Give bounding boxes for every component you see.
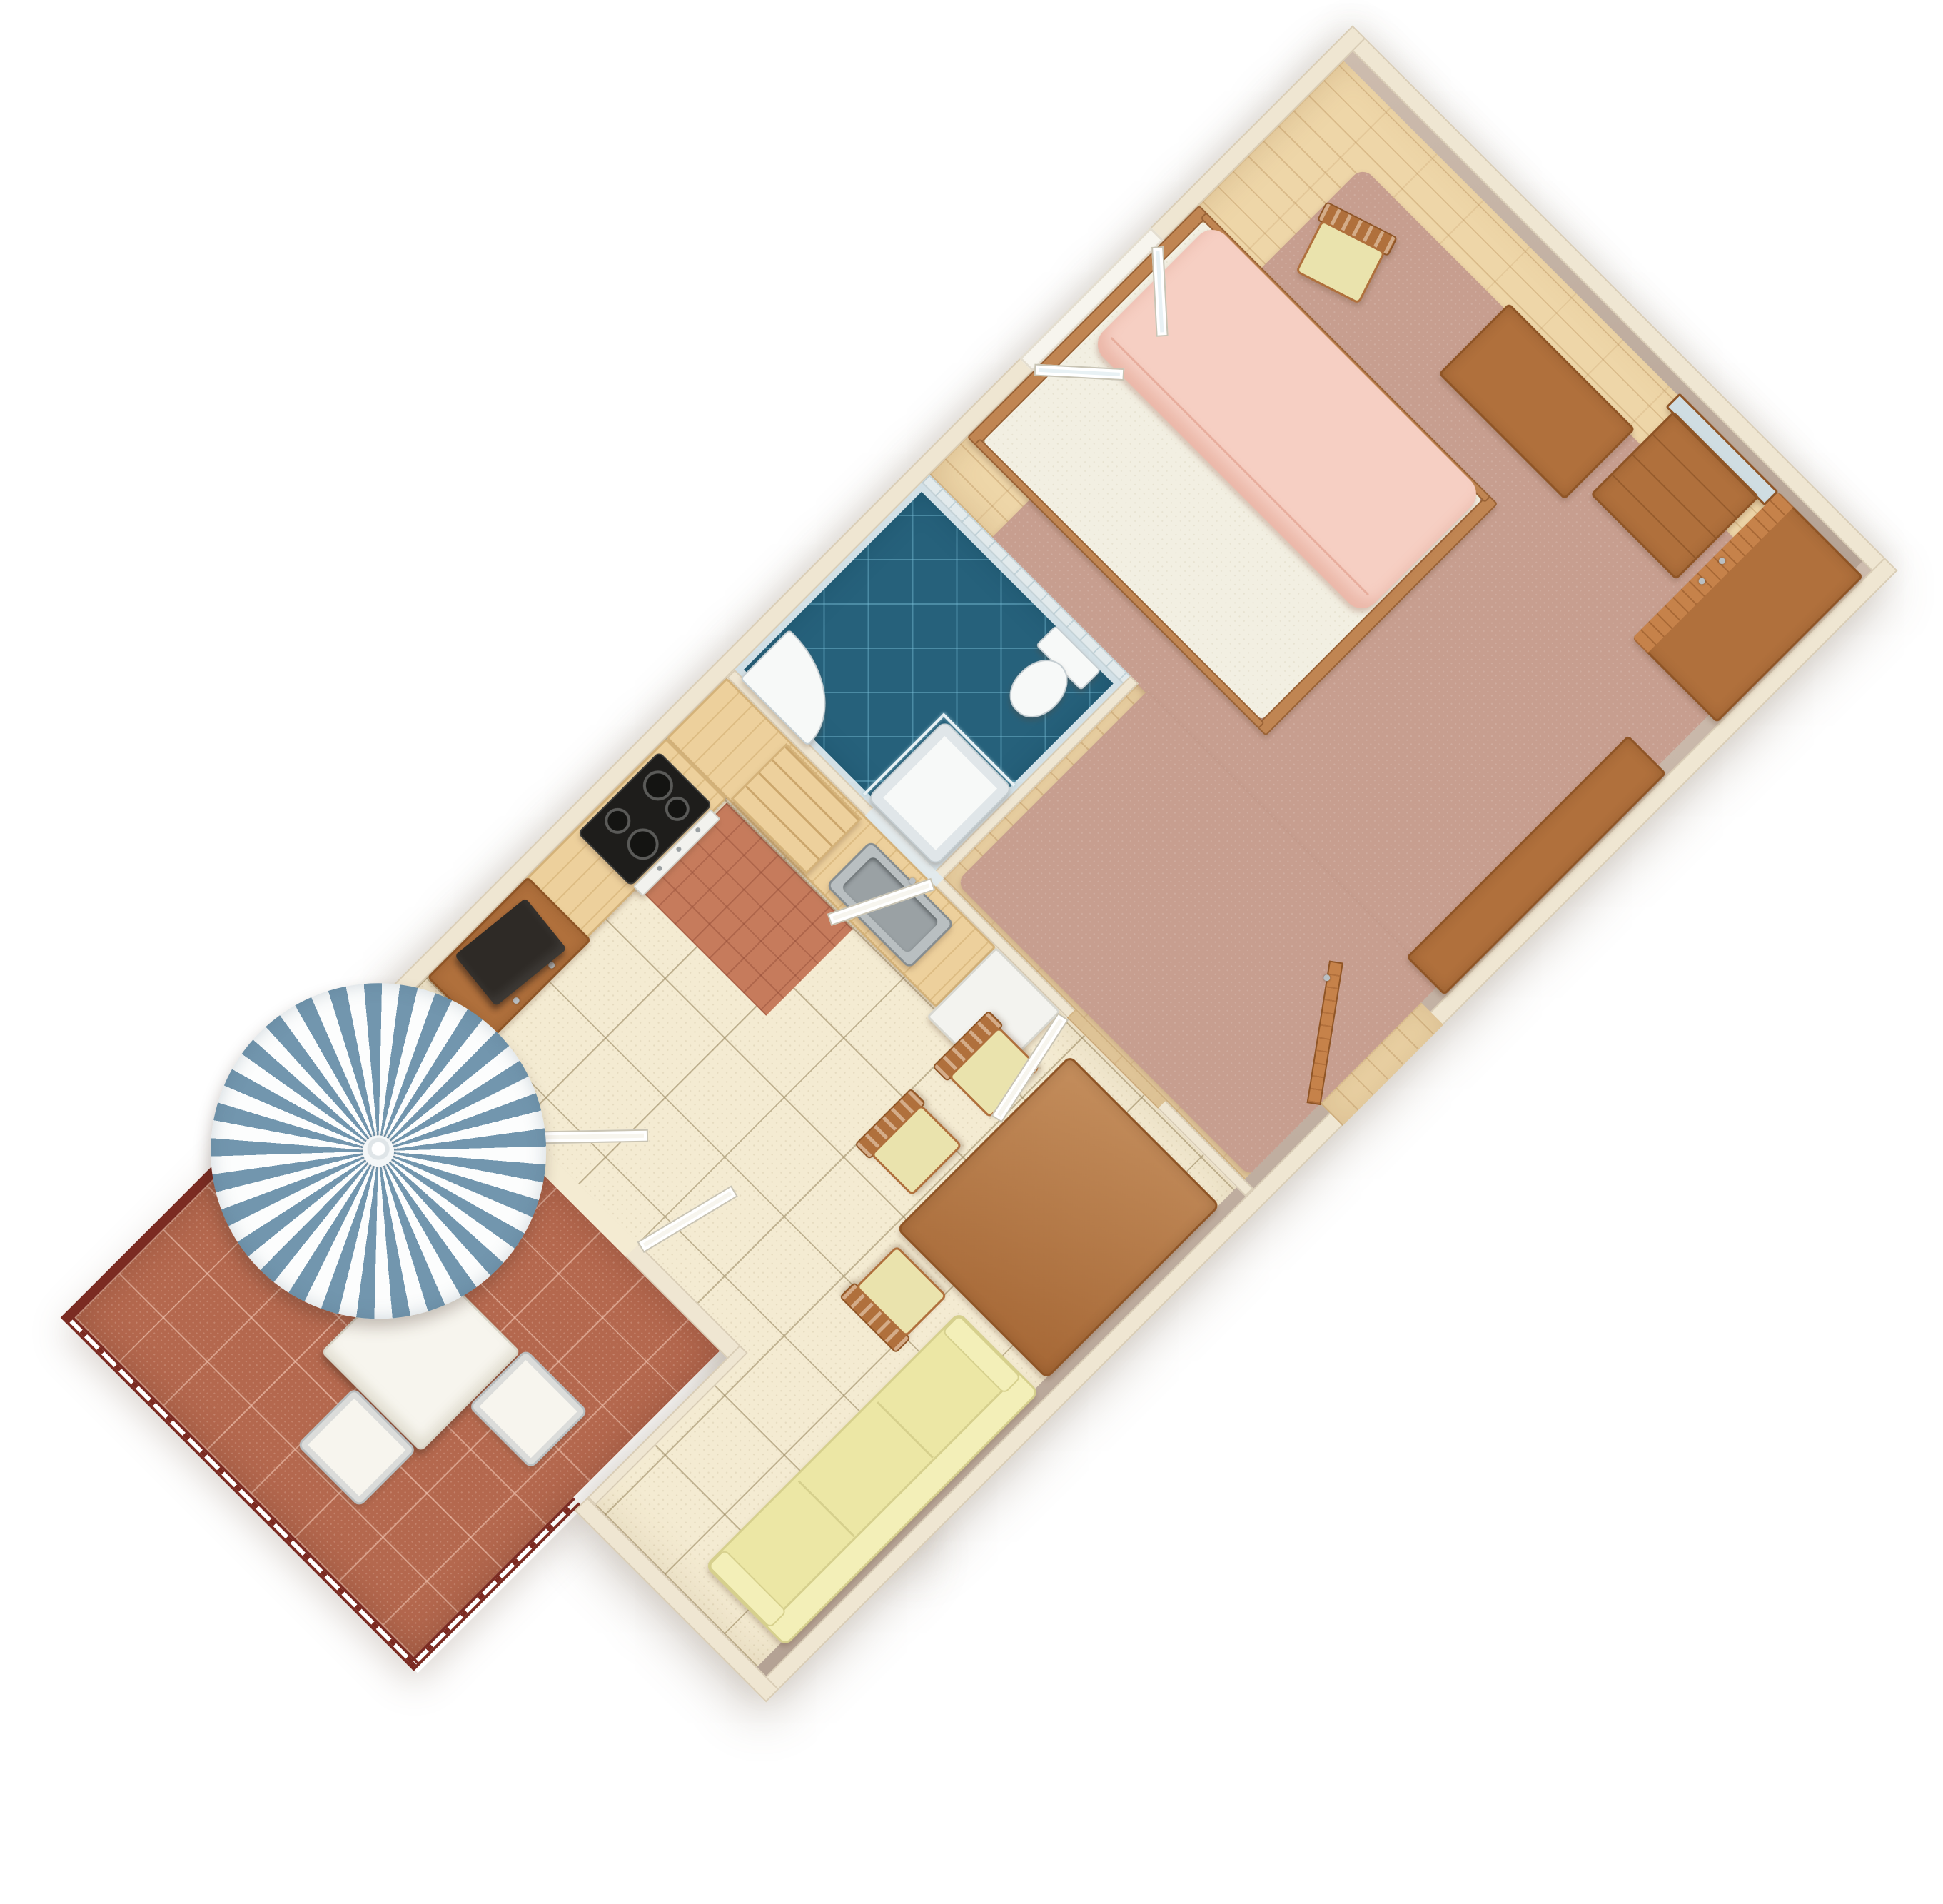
oven-knob <box>656 865 663 872</box>
balcony-door-leaf-left <box>537 1129 648 1144</box>
sofa-cushion-seam <box>877 1401 934 1459</box>
oven-knob <box>675 846 682 853</box>
apartment-floorplan <box>45 25 1897 1878</box>
parasol-hub <box>356 1129 400 1173</box>
oven-knob <box>695 827 702 834</box>
tv-stand-handle <box>512 996 521 1005</box>
sofa-cushion-seam <box>798 1480 855 1537</box>
entry-door-handle <box>1323 974 1331 982</box>
floorplan-stage <box>0 0 1943 1904</box>
